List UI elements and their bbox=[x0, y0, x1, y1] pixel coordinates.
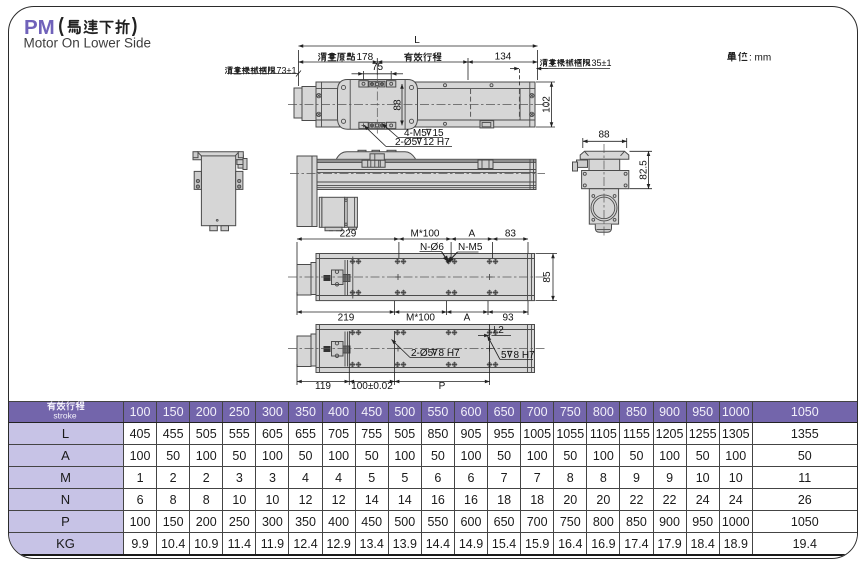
svg-text:88: 88 bbox=[393, 99, 404, 111]
svg-text:M*100: M*100 bbox=[406, 313, 435, 324]
svg-text:stroke: stroke bbox=[53, 411, 76, 421]
svg-text:119: 119 bbox=[315, 381, 331, 392]
svg-text:Motor On Lower Side: Motor On Lower Side bbox=[24, 36, 152, 51]
svg-text:93: 93 bbox=[502, 313, 514, 324]
svg-text:12 H7: 12 H7 bbox=[423, 137, 450, 148]
svg-text:2: 2 bbox=[498, 325, 504, 336]
svg-text:5: 5 bbox=[501, 350, 507, 361]
svg-text:A: A bbox=[464, 313, 471, 324]
svg-text:2-Ø5: 2-Ø5 bbox=[411, 348, 434, 359]
svg-text:P: P bbox=[439, 381, 446, 392]
svg-text:N-M5: N-M5 bbox=[458, 242, 483, 253]
svg-text:M*100: M*100 bbox=[411, 229, 440, 240]
svg-text:8 H7: 8 H7 bbox=[514, 350, 536, 361]
svg-text:35±1: 35±1 bbox=[592, 58, 612, 68]
svg-text:75: 75 bbox=[372, 62, 384, 73]
svg-text:88: 88 bbox=[598, 130, 610, 141]
svg-text:82.5: 82.5 bbox=[639, 160, 650, 180]
svg-text:8 H7: 8 H7 bbox=[439, 348, 461, 359]
svg-text:100±0.02: 100±0.02 bbox=[351, 381, 393, 392]
svg-text:73±1: 73±1 bbox=[277, 66, 297, 76]
svg-text:83: 83 bbox=[505, 229, 517, 240]
svg-text:134: 134 bbox=[495, 52, 512, 63]
svg-text:229: 229 bbox=[340, 229, 357, 240]
svg-text:A: A bbox=[468, 229, 475, 240]
svg-text:219: 219 bbox=[338, 313, 355, 324]
svg-text:2-Ø5: 2-Ø5 bbox=[395, 137, 418, 148]
svg-text:102: 102 bbox=[541, 96, 552, 113]
svg-text:85: 85 bbox=[542, 271, 553, 283]
svg-text:L: L bbox=[414, 35, 420, 46]
svg-text:: mm: : mm bbox=[749, 53, 771, 64]
